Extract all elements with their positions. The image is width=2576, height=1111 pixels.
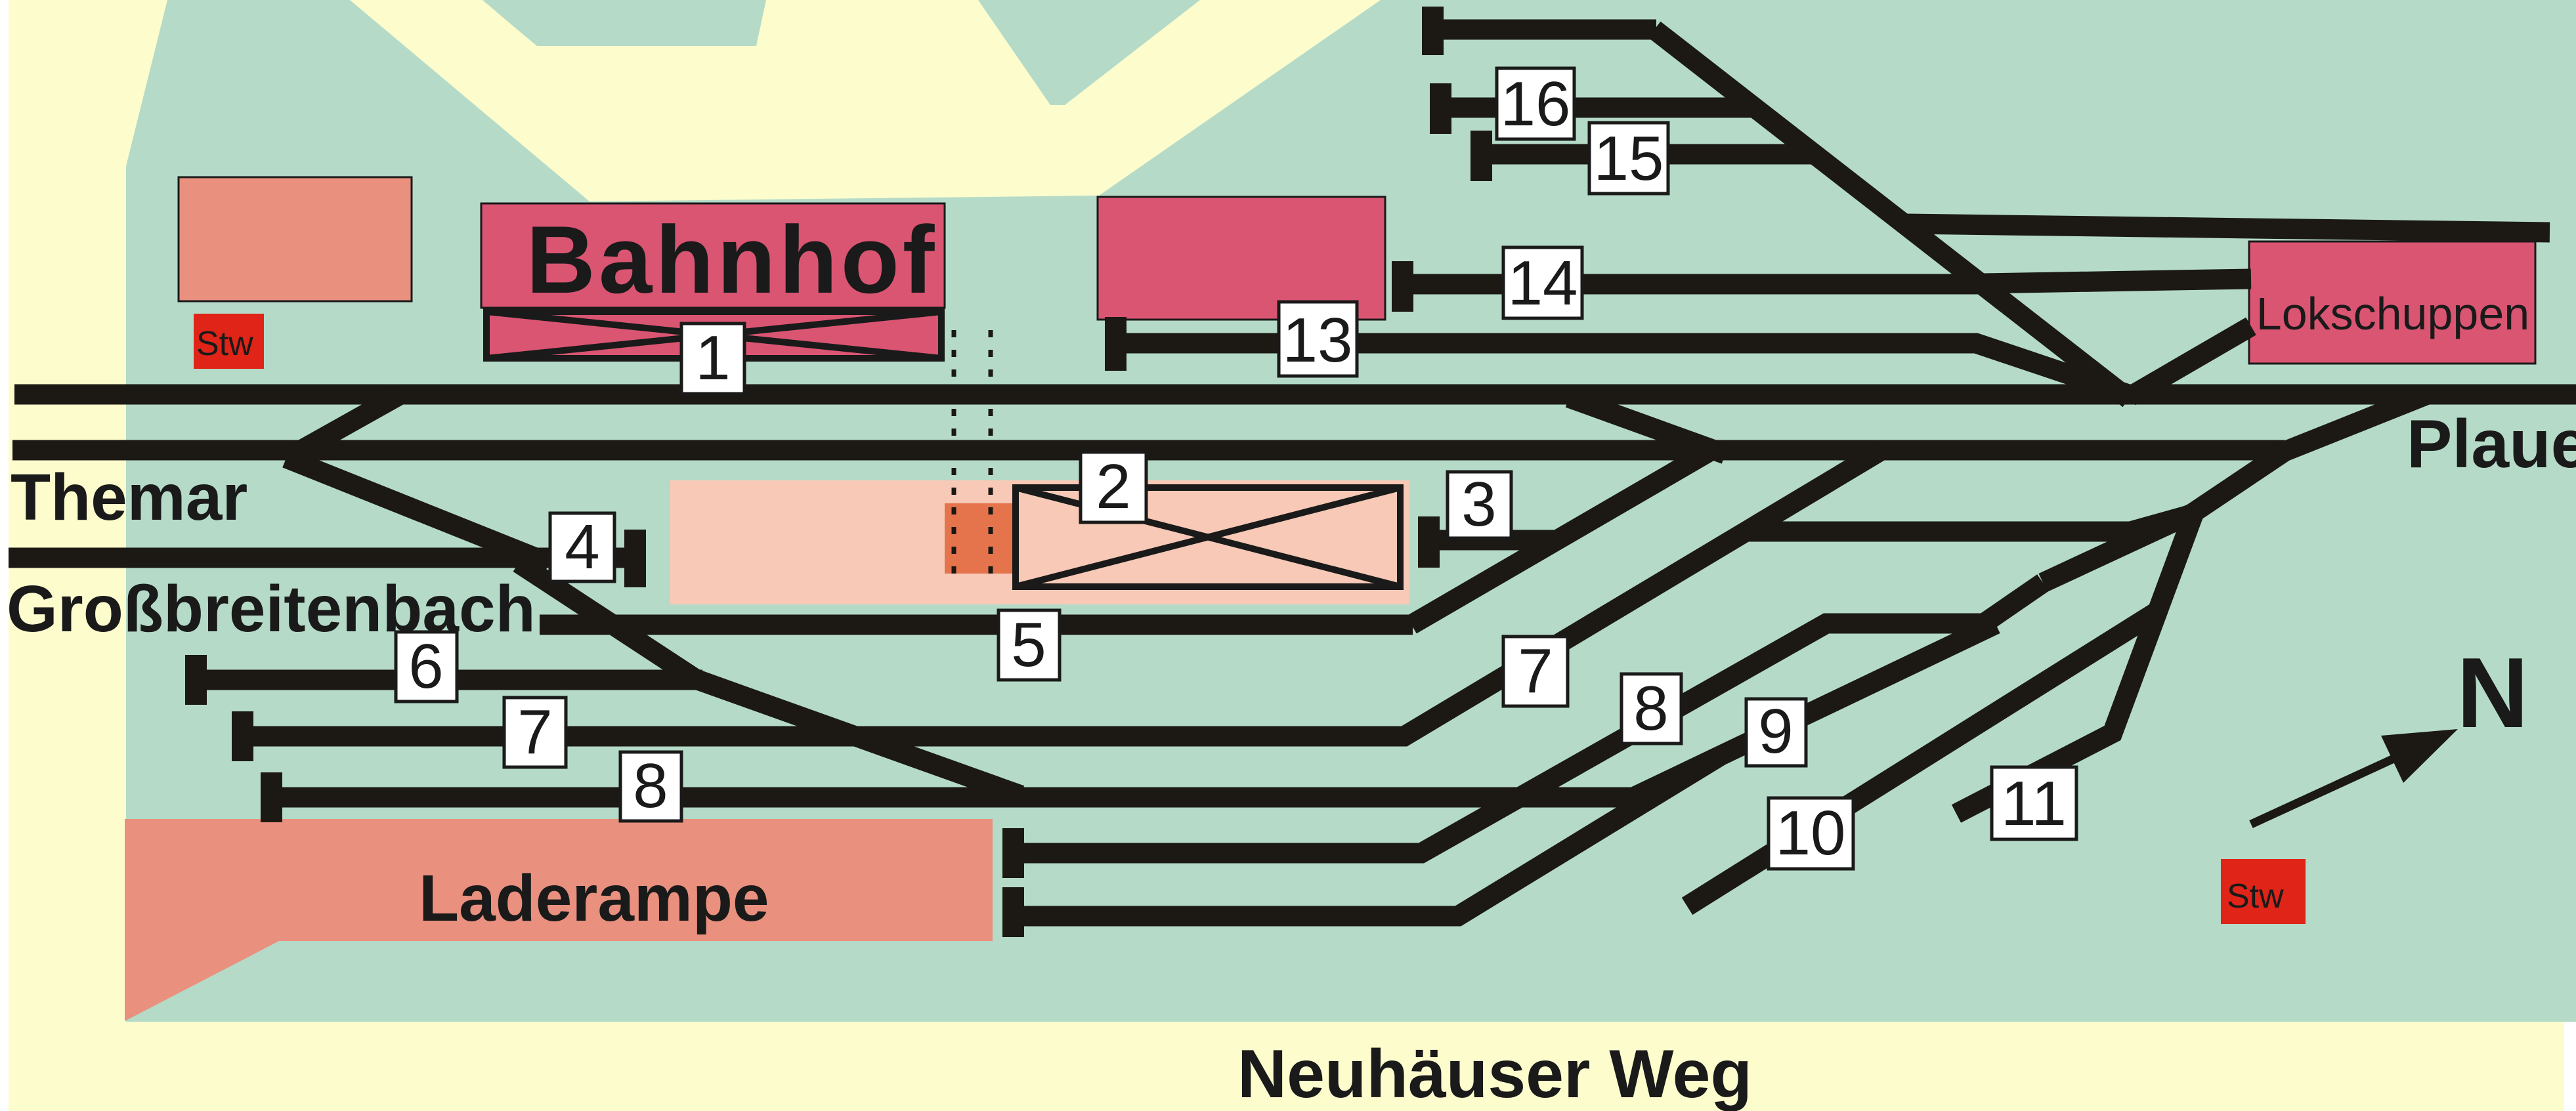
svg-text:11: 11 [2001, 768, 2067, 839]
svg-text:9: 9 [1758, 696, 1793, 766]
svg-text:4: 4 [565, 512, 599, 582]
svg-text:5: 5 [1011, 610, 1046, 680]
svg-text:16: 16 [1501, 69, 1571, 139]
svg-text:Plaue: Plaue [2407, 406, 2576, 482]
svg-text:8: 8 [633, 751, 668, 821]
svg-text:Stw: Stw [196, 325, 253, 363]
svg-text:7: 7 [517, 697, 552, 767]
svg-text:Lokschuppen: Lokschuppen [2256, 288, 2529, 339]
svg-text:1: 1 [695, 323, 730, 393]
svg-text:13: 13 [1283, 305, 1353, 375]
svg-text:Themar: Themar [11, 461, 247, 534]
svg-text:Neuhäuser Weg: Neuhäuser Weg [1237, 1036, 1752, 1111]
svg-text:Stw: Stw [2227, 877, 2284, 915]
svg-text:2: 2 [1096, 451, 1130, 522]
svg-text:N: N [2457, 637, 2529, 749]
svg-text:Laderampe: Laderampe [419, 862, 769, 935]
svg-text:15: 15 [1594, 123, 1664, 194]
svg-text:8: 8 [1633, 673, 1668, 744]
svg-text:14: 14 [1508, 248, 1578, 318]
svg-text:6: 6 [408, 631, 443, 702]
svg-text:10: 10 [1776, 798, 1846, 868]
svg-text:3: 3 [1461, 469, 1496, 539]
svg-text:7: 7 [1518, 636, 1553, 706]
svg-text:Bahnhof: Bahnhof [526, 206, 938, 313]
